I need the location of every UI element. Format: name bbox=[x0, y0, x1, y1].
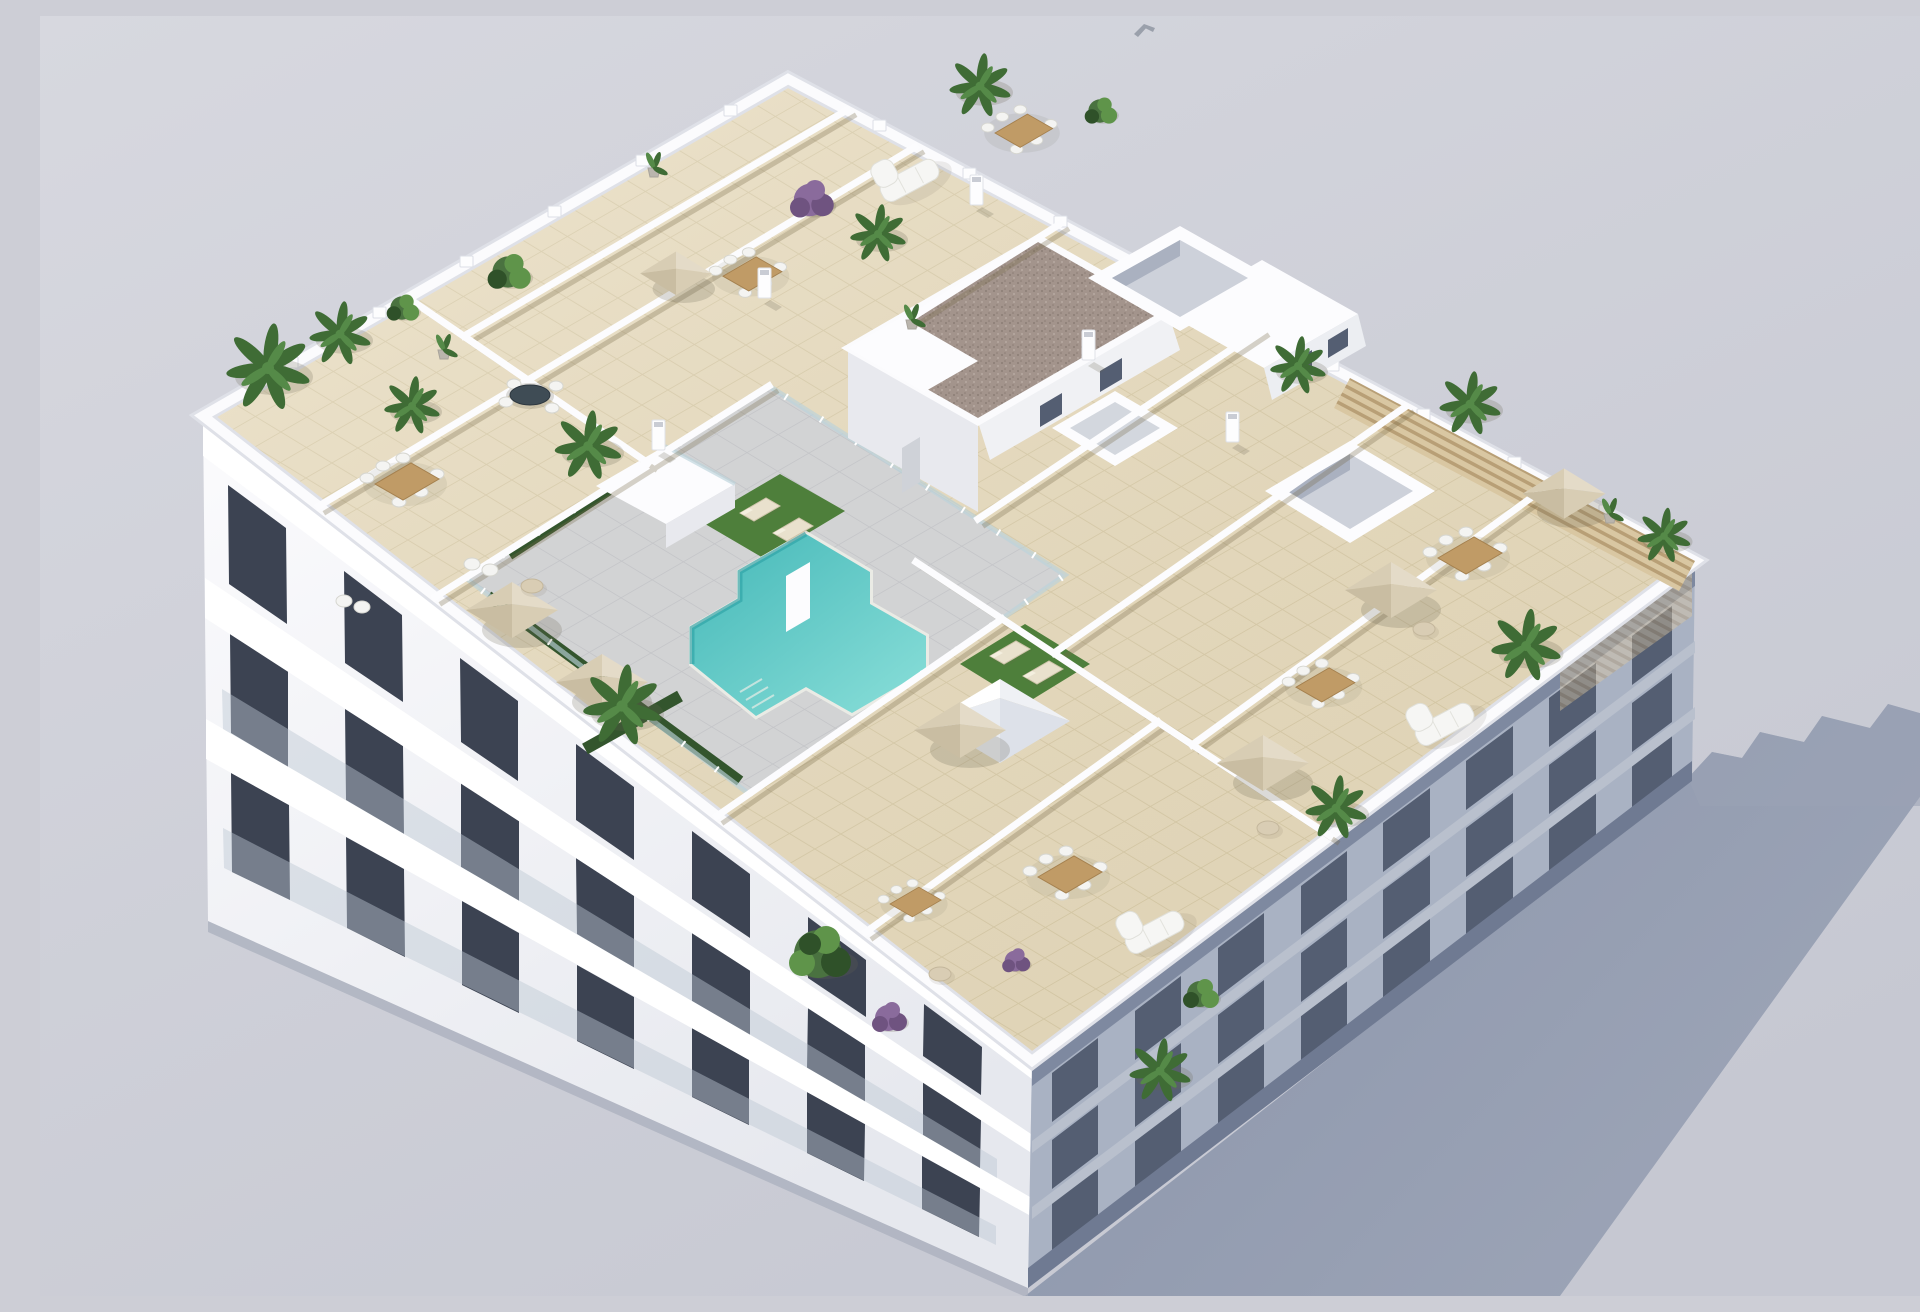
render-image: Aerial 3D render — rooftop pool terrace … bbox=[40, 16, 1920, 1296]
render-svg: Aerial 3D render — rooftop pool terrace … bbox=[40, 16, 1920, 1296]
